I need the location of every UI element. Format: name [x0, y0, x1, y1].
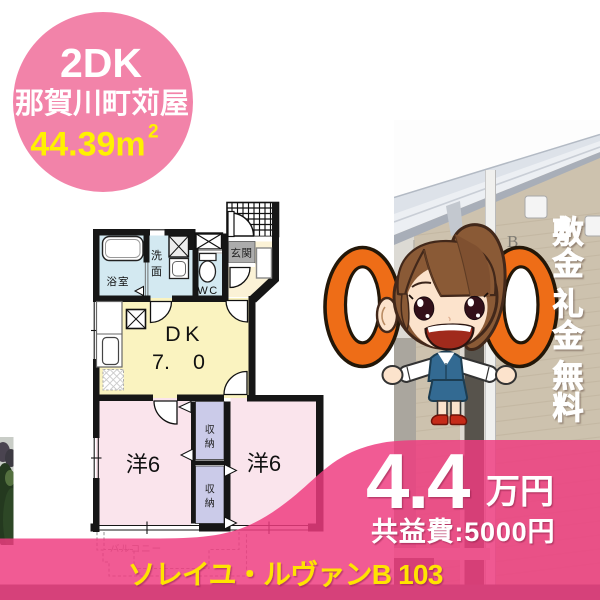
svg-text:DK: DK [165, 322, 204, 346]
svg-text:無: 無 [553, 359, 584, 394]
svg-text:納: 納 [205, 437, 215, 450]
svg-text:万円: 万円 [486, 473, 554, 511]
svg-text:4.4: 4.4 [366, 437, 470, 525]
svg-text:金: 金 [552, 247, 585, 282]
svg-text:金: 金 [552, 319, 585, 354]
svg-text:那賀川町苅屋: 那賀川町苅屋 [15, 87, 189, 120]
svg-text:納: 納 [205, 497, 215, 510]
svg-text:2DK: 2DK [60, 40, 142, 86]
svg-text:ソレイユ・ルヴァンB 103: ソレイユ・ルヴァンB 103 [128, 558, 443, 590]
svg-text:浴室: 浴室 [107, 275, 130, 288]
svg-text:44.39m: 44.39m [30, 126, 145, 164]
svg-text:WC: WC [197, 285, 218, 297]
svg-text:礼: 礼 [553, 287, 584, 322]
svg-text:玄関: 玄関 [231, 247, 253, 260]
svg-text:0: 0 [193, 350, 205, 374]
svg-text:洋6: 洋6 [247, 451, 281, 476]
svg-text:収: 収 [205, 424, 215, 436]
svg-text:2: 2 [148, 122, 159, 143]
svg-text:共益費:5000円: 共益費:5000円 [371, 517, 555, 547]
svg-text:収: 収 [205, 484, 215, 496]
svg-text:洋6: 洋6 [126, 452, 160, 477]
svg-text:料: 料 [553, 391, 584, 426]
svg-text:敷: 敷 [553, 215, 584, 250]
svg-text:7.: 7. [152, 350, 170, 374]
svg-text:面: 面 [151, 266, 162, 278]
svg-text:洗: 洗 [151, 249, 162, 262]
